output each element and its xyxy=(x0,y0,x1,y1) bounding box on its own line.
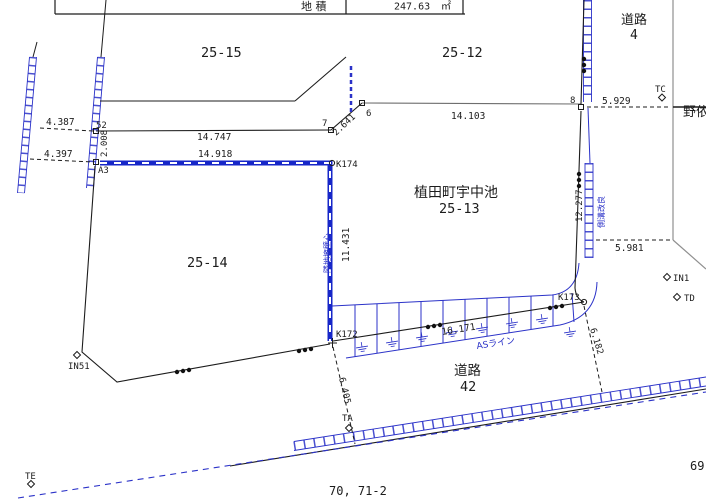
gutter-improvement-note: 側溝改良 xyxy=(596,196,606,228)
road4-name: 道路 xyxy=(621,12,647,28)
road4-number: 4 xyxy=(630,28,638,43)
offsite-label-noyori: 野依 xyxy=(683,105,706,120)
blue-wall-boundary xyxy=(100,163,330,341)
point-td: TD xyxy=(684,294,695,304)
area-table-label: 地 積 xyxy=(301,0,327,13)
dim-6182: 6.182 xyxy=(587,327,604,356)
point-in51: IN51 xyxy=(68,362,90,372)
ladder-left-west xyxy=(18,42,38,193)
dim-4387: 4.387 xyxy=(46,117,75,128)
area-unit: ㎡ xyxy=(441,1,451,13)
parcel-label-25-13: 25-13 xyxy=(439,201,480,217)
parcel-label-25-12: 25-12 xyxy=(442,45,483,61)
point-ta: TA xyxy=(342,414,353,424)
dim-4397: 4.397 xyxy=(44,149,73,160)
dim-2008: 2.008 xyxy=(100,130,110,157)
dim-5981: 5.981 xyxy=(615,243,644,254)
gray-boundary-lines xyxy=(673,0,706,269)
district-title: 植田町宇中池 xyxy=(414,185,498,201)
ladder-bottom-road xyxy=(294,377,706,451)
point-6: 6 xyxy=(366,109,371,119)
dim-6405: 6.405 xyxy=(336,376,352,405)
point-8: 8 xyxy=(570,96,575,106)
dim-14103: 14.103 xyxy=(451,111,485,122)
circle-markers xyxy=(329,160,586,304)
point-k173: K173 xyxy=(558,293,580,303)
dim-16171: 16.171 xyxy=(441,322,477,338)
parcel-label-70-71-2: 70, 71-2 xyxy=(329,484,387,498)
area-value: 247.63 xyxy=(394,2,430,13)
ladder-east xyxy=(585,108,593,258)
dim-14918: 14.918 xyxy=(198,149,233,160)
point-7: 7 xyxy=(322,119,327,129)
parcel-label-69: 69 xyxy=(690,459,704,473)
point-te: TE xyxy=(25,472,36,482)
survey-drawing: 地 積 247.63 ㎡ xyxy=(0,0,706,500)
dim-5929: 5.929 xyxy=(602,96,631,107)
ladder-top-right xyxy=(584,0,592,102)
dim-11431: 11.431 xyxy=(341,227,352,262)
dim-12277: 12.277 xyxy=(575,189,585,222)
parcel-label-25-15: 25-15 xyxy=(201,45,242,61)
point-in1: IN1 xyxy=(673,274,689,284)
point-a3: A3 xyxy=(98,166,109,176)
diamond-markers xyxy=(28,94,681,488)
dim-14747: 14.747 xyxy=(197,132,231,143)
point-k174: K174 xyxy=(336,160,358,170)
dim-2641: 2.641 xyxy=(331,112,358,138)
road42-number: 42 xyxy=(460,379,476,395)
parcel-boundaries xyxy=(82,0,706,466)
boundary-dots xyxy=(175,57,586,374)
cadastral-survey-map: 地 積 247.63 ㎡ xyxy=(0,0,706,500)
road42-name: 道路 xyxy=(454,363,481,379)
road42-strip xyxy=(332,263,597,358)
neighbor-wall-note: 隣地擁壁心 xyxy=(322,233,332,273)
point-52: 52 xyxy=(96,121,107,131)
point-k172: K172 xyxy=(336,330,358,340)
parcel-label-25-14: 25-14 xyxy=(187,255,228,271)
point-tc: TC xyxy=(655,85,666,95)
